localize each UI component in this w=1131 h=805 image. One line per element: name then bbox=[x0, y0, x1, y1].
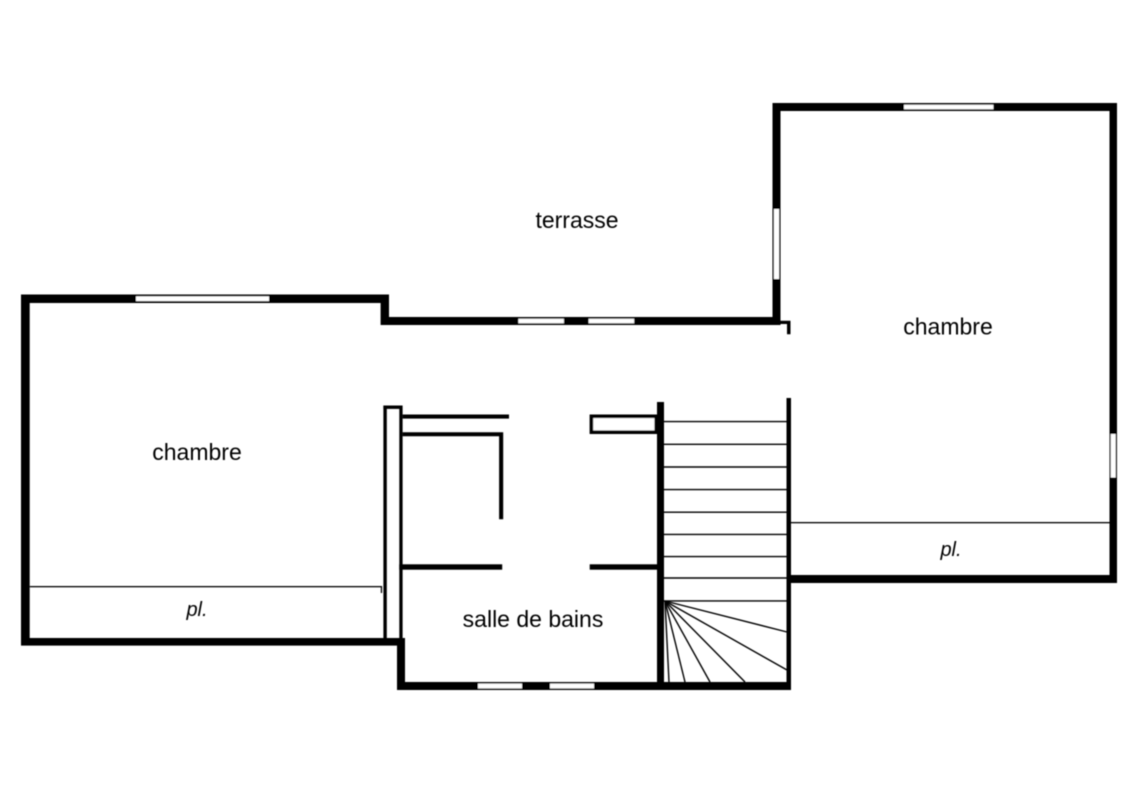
svg-text:pl.: pl. bbox=[185, 599, 207, 621]
svg-text:chambre: chambre bbox=[903, 314, 992, 340]
svg-text:terrasse: terrasse bbox=[535, 207, 618, 233]
svg-text:chambre: chambre bbox=[152, 439, 241, 465]
svg-text:pl.: pl. bbox=[939, 539, 961, 561]
svg-text:salle de bains: salle de bains bbox=[463, 606, 604, 632]
